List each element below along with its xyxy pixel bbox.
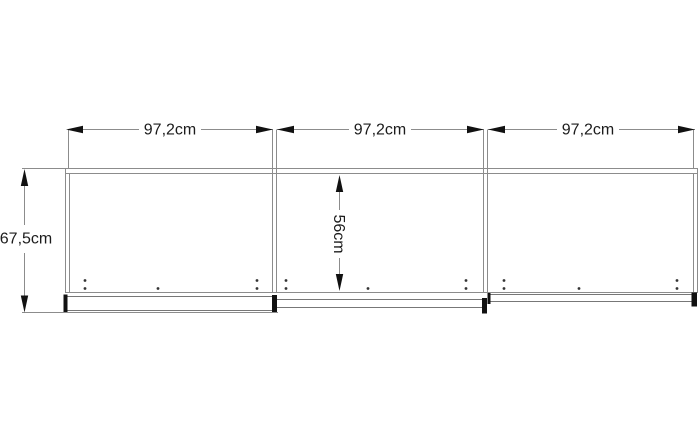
drill-hole-dot <box>157 287 160 290</box>
drill-hole-dot <box>285 287 288 290</box>
diagram-svg: 97,2cm 97,2cm 97,2cm 67,5cm 56cm <box>0 0 700 438</box>
arrow-up-icon <box>21 169 28 186</box>
arrow-down-icon <box>336 274 343 291</box>
arrow-right-icon <box>678 126 695 133</box>
drill-hole-dot <box>503 287 506 290</box>
left-rail-right-cap <box>272 295 277 313</box>
dim-label-interior-height: 56cm <box>330 214 347 253</box>
drill-hole-dot <box>465 287 468 290</box>
drill-hole-dot <box>465 279 468 282</box>
cabinet-outline <box>65 168 698 293</box>
drill-hole-dot <box>676 287 679 290</box>
drill-hole-dots <box>84 279 679 290</box>
right-rail-left-cap <box>488 293 491 304</box>
drill-hole-dot <box>285 279 288 282</box>
left-rail-left-cap <box>64 295 68 313</box>
drill-hole-dot <box>503 279 506 282</box>
dim-label-section-3: 97,2cm <box>562 122 614 139</box>
dim-label-section-2: 97,2cm <box>354 122 406 139</box>
drill-hole-dot <box>84 287 87 290</box>
arrow-left-icon <box>277 126 294 133</box>
dimension-diagram: 97,2cm 97,2cm 97,2cm 67,5cm 56cm <box>0 0 700 438</box>
middle-rail-right-cap <box>482 298 487 314</box>
arrow-right-icon <box>467 126 484 133</box>
arrow-right-icon <box>256 126 273 133</box>
dim-label-section-1: 97,2cm <box>144 122 196 139</box>
floor-rails <box>66 295 695 311</box>
drill-hole-dot <box>256 287 259 290</box>
drill-hole-dot <box>256 279 259 282</box>
arrow-left-icon <box>488 126 505 133</box>
drill-hole-dot <box>676 279 679 282</box>
dim-label-total-height: 67,5cm <box>0 231 52 248</box>
arrow-up-icon <box>336 175 343 192</box>
drill-hole-dot <box>84 279 87 282</box>
drill-hole-dot <box>367 287 370 290</box>
right-rail-right-cap <box>692 293 698 307</box>
arrow-down-icon <box>21 296 28 313</box>
drill-hole-dot <box>578 287 581 290</box>
